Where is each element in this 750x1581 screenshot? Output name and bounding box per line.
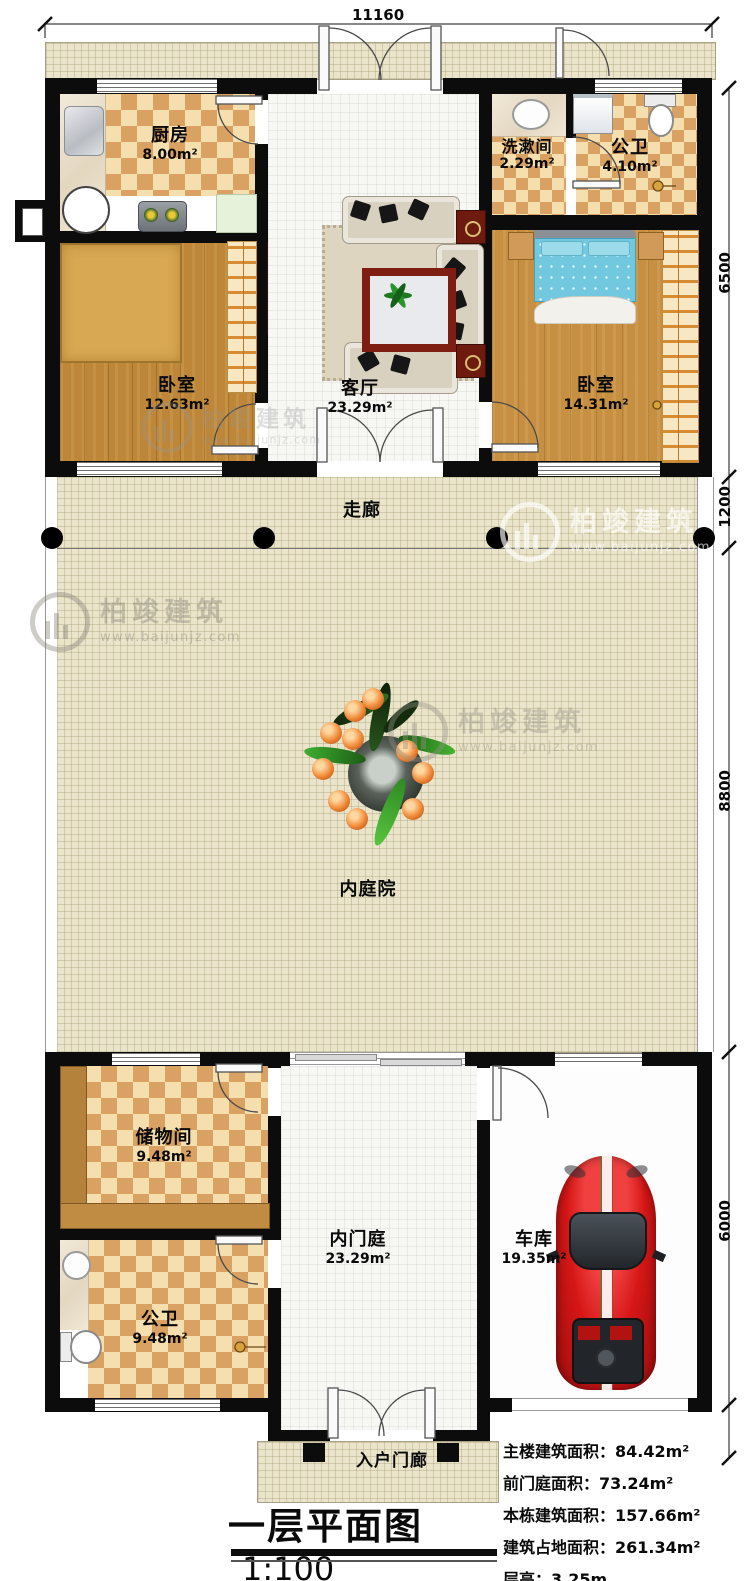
label-bedroom-right: 卧室14.31m² xyxy=(546,376,646,413)
floor-plan: 11160 6500 1200 8800 6000 厨房8.00m² 洗漱间2.… xyxy=(0,0,750,1581)
stat-line: 本栋建筑面积：157.66m² xyxy=(503,1502,728,1526)
label-bath-bottom: 公卫9.48m² xyxy=(110,1310,210,1347)
stat-line: 层高：3.25m xyxy=(503,1566,728,1581)
label-bedroom-left: 卧室12.63m² xyxy=(127,376,227,413)
page-title: 一层平面图 xyxy=(228,1496,423,1550)
dim-1200: 1200 xyxy=(716,486,734,528)
title-underline-thin xyxy=(231,1560,497,1562)
title-block: 一层平面图1:100 xyxy=(228,1496,500,1581)
label-bath-top: 公卫4.10m² xyxy=(584,138,676,175)
title-underline xyxy=(231,1549,497,1556)
dim-top: 11160 xyxy=(352,6,404,24)
label-kitchen: 厨房8.00m² xyxy=(120,126,220,163)
stat-line: 建筑占地面积：261.34m² xyxy=(503,1534,728,1558)
stat-line: 主楼建筑面积：84.42m² xyxy=(503,1438,728,1462)
label-corridor: 走廊 xyxy=(330,501,394,522)
label-courtyard: 内庭院 xyxy=(316,880,420,901)
stat-line: 前门庭面积：73.24m² xyxy=(503,1470,728,1494)
label-foyer: 内门庭23.29m² xyxy=(306,1230,410,1267)
stats-block: 主楼建筑面积：84.42m² 前门庭面积：73.24m² 本栋建筑面积：157.… xyxy=(503,1438,728,1581)
dim-6000: 6000 xyxy=(716,1200,734,1242)
label-porch: 入户门廊 xyxy=(338,1452,446,1472)
dim-8800: 8800 xyxy=(716,770,734,812)
label-garage: 车库19.35m² xyxy=(482,1230,586,1267)
dim-6500: 6500 xyxy=(716,252,734,294)
label-storage: 储物间9.48m² xyxy=(114,1128,214,1165)
label-living: 客厅23.29m² xyxy=(310,379,410,416)
label-washroom: 洗漱间2.29m² xyxy=(481,138,573,172)
